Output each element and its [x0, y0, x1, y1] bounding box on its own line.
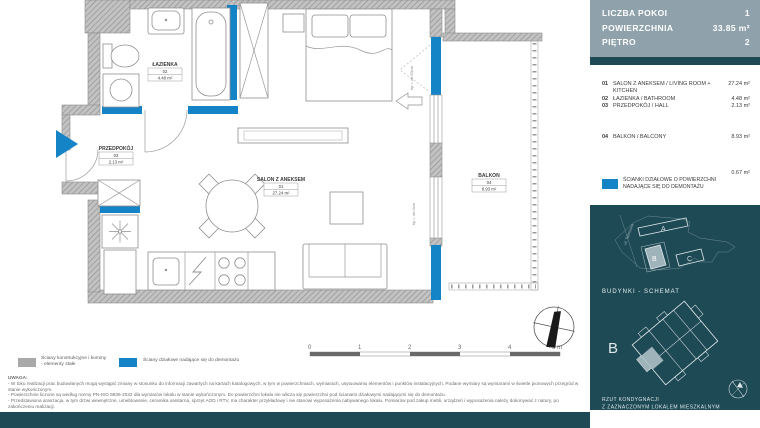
site-panel: ul. Taśmowa A B C BUDYNKI - SCHEMAT	[590, 205, 760, 410]
room-label-lazienka: ŁAZIENKA 02 4.48 m²	[148, 62, 182, 81]
dining-set	[199, 174, 265, 238]
floorplan-card: hp = ok.50cm hp = ok.0cm ŁAZIENKA 02 4.4…	[0, 0, 760, 428]
partition-area-note: ŚCIANKI DZIAŁOWE O POWIERZCHNI NADAJĄCE …	[602, 177, 750, 190]
summary-row: POWIERZCHNIA 33.85 m²	[602, 23, 750, 33]
building-c-label: C	[687, 256, 692, 263]
rooms-count-label: LICZBA POKOI	[602, 8, 667, 18]
room-label-przedpokoj: PRZEDPOKÓJ 03 2.13 m²	[99, 144, 134, 165]
partition-area-value: 0.67 m²	[731, 170, 750, 176]
structural-wall-label-line1: Ściany konstrukcyjne i kominy	[41, 356, 106, 361]
svg-text:BALKON: BALKON	[478, 173, 500, 179]
svg-text:03: 03	[114, 153, 119, 158]
room-list-row: 01 SALON Z ANEKSEM / LIVING ROOM + KITCH…	[602, 81, 750, 96]
svg-text:8.93 m²: 8.93 m²	[482, 187, 497, 192]
svg-text:ŁAZIENKA: ŁAZIENKA	[152, 62, 178, 68]
area-value: 33.85 m²	[713, 23, 750, 33]
hall-fittings	[98, 180, 140, 294]
footer-bar	[0, 412, 592, 428]
summary-header: LICZBA POKOI 1 POWIERZCHNIA 33.85 m² PIĘ…	[590, 0, 760, 57]
kitchen-sink	[153, 258, 179, 285]
shaft	[240, 3, 268, 98]
coffee-table	[330, 192, 363, 224]
room-list-row: 03 PRZEDPOKÓJ / HALL 2.13 m²	[602, 103, 750, 110]
structural-wall-label: Ściany konstrukcyjne i kominy - elementy…	[41, 356, 116, 368]
rooms-count-value: 1	[745, 8, 750, 18]
divider	[590, 57, 760, 65]
street-label: ul. Taśmowa	[622, 222, 635, 245]
svg-text:4: 4	[508, 345, 512, 351]
partition-swatch	[602, 179, 618, 189]
svg-text:3: 3	[458, 345, 462, 351]
svg-text:2: 2	[408, 345, 412, 351]
building-a-label: A	[661, 226, 666, 233]
kitchen	[148, 252, 275, 290]
floorplan-drawing: hp = ok.50cm hp = ok.0cm ŁAZIENKA 02 4.4…	[0, 0, 590, 412]
room-list-row: 04 BALKON / BALCONY 8.93 m²	[602, 134, 750, 141]
site-drawings: ul. Taśmowa A B C BUDYNKI - SCHEMAT	[590, 205, 760, 410]
buildings-caption: BUDYNKI - SCHEMAT	[602, 289, 680, 295]
svg-text:2.13 m²: 2.13 m²	[109, 160, 124, 165]
sill-height-50: hp = ok.50cm	[409, 65, 414, 90]
summary-row: LICZBA POKOI 1	[602, 8, 750, 18]
floor-value: 2	[745, 37, 750, 47]
svg-text:SALON Z ANEKSEM: SALON Z ANEKSEM	[257, 177, 305, 183]
floor-caption-line1: RZUT KONDYGNACJI	[602, 397, 659, 403]
compass-icon	[529, 302, 579, 352]
room-list: 01 SALON Z ANEKSEM / LIVING ROOM + KITCH…	[590, 65, 760, 205]
partition-note-text: ŚCIANKI DZIAŁOWE O POWIERZCHNI NADAJĄCE …	[623, 177, 723, 190]
notes-block: UWAGA: - W toku realizacji prac budowlan…	[8, 375, 583, 410]
building-b-label: B	[652, 256, 657, 263]
structural-wall-label-line2: - elementy stałe	[41, 362, 76, 367]
summary-row: PIĘTRO 2	[602, 37, 750, 47]
svg-text:4.48 m²: 4.48 m²	[158, 76, 173, 81]
nightstand	[283, 14, 304, 32]
note-line: - W toku realizacji prac budowlanych mog…	[8, 381, 583, 393]
svg-text:0: 0	[308, 345, 312, 351]
partition-wall-swatch	[119, 358, 137, 367]
sill-height-0: hp = ok.0cm	[411, 202, 416, 225]
svg-text:01: 01	[279, 184, 284, 189]
tv-cabinet	[238, 128, 348, 143]
partition-wall-label: Ściany działowe nadające się do demontaż…	[143, 358, 363, 364]
sidebar-compass-icon	[729, 380, 747, 398]
svg-text:04: 04	[487, 180, 492, 185]
svg-text:27.24 m²: 27.24 m²	[273, 191, 291, 196]
balcony	[449, 41, 538, 290]
svg-text:1: 1	[358, 345, 362, 351]
entrance-door-arc	[66, 149, 98, 181]
room-label-salon: SALON Z ANEKSEM 01 27.24 m²	[257, 177, 305, 196]
svg-text:PRZEDPOKÓJ: PRZEDPOKÓJ	[99, 144, 134, 152]
area-label: POWIERZCHNIA	[602, 23, 673, 33]
floor-schematic	[624, 294, 725, 393]
sidebar: LICZBA POKOI 1 POWIERZCHNIA 33.85 m² PIĘ…	[590, 0, 760, 428]
room-label-balkon: BALKON 04 8.93 m²	[472, 173, 506, 192]
balcony-door-arrow-icon	[396, 93, 422, 109]
structural-wall-swatch	[18, 358, 36, 367]
floor-caption-line2: Z ZAZNACZONYM LOKALEM MIESZKALNYM	[602, 405, 720, 411]
window-swing-projection	[400, 45, 430, 92]
scale-bar: 0 1 2 3 4 5 m	[308, 345, 562, 356]
svg-text:02: 02	[163, 69, 168, 74]
sofa	[303, 244, 387, 289]
fridge	[104, 250, 136, 294]
note-line: - Przedstawiona aranżacja, w tym drzwi w…	[8, 398, 583, 410]
building-letter: B	[608, 340, 618, 357]
floor-label: PIĘTRO	[602, 37, 636, 47]
bathroom-door-arc	[145, 110, 187, 152]
